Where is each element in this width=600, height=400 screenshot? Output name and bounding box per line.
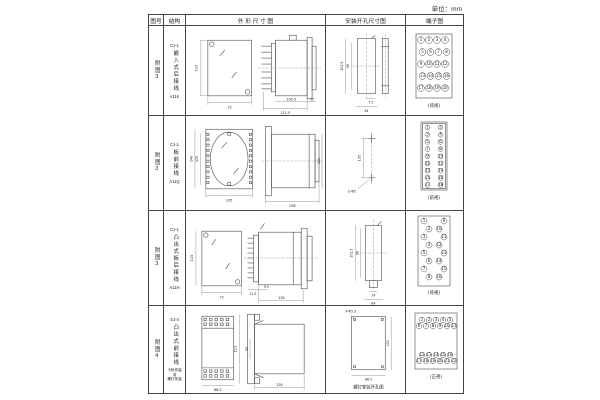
svg-text:4: 4: [428, 242, 431, 247]
svg-text:4: 4: [439, 131, 442, 136]
terminal-pins: 12345678910111213141516: [421, 218, 447, 280]
mounting-drawing-row4: 4-Φ5.5 111 88.5 螺钉安装开孔图: [326, 306, 405, 393]
outline-drawing-row2: 149 125 105 156 121: [186, 116, 325, 211]
dim-front-height: 115: [190, 254, 194, 261]
svg-text:22: 22: [451, 358, 457, 363]
dim-v-outer: 101.5: [350, 248, 354, 257]
fig-number: 附图4: [153, 339, 158, 361]
model-code: CJ-1: [170, 227, 179, 232]
svg-text:16: 16: [438, 174, 444, 179]
dim-side-length: 156: [289, 204, 296, 208]
svg-text:7: 7: [425, 323, 428, 328]
model-code: SJ-4: [170, 317, 179, 322]
terminal-pins: 12345678910111213141516171819202122: [416, 317, 457, 364]
svg-text:16: 16: [447, 352, 453, 357]
mounting-cell-row2: 135 2-Φ5: [326, 116, 406, 211]
svg-text:6: 6: [418, 323, 421, 328]
svg-text:15: 15: [440, 352, 446, 357]
svg-text:16: 16: [444, 73, 450, 78]
svg-text:18: 18: [423, 358, 429, 363]
svg-text:5: 5: [426, 138, 429, 143]
terminal-pins: 135791113151724681012141618: [425, 124, 444, 187]
terminal-cell-row3: 12345678910111213141516 (背视): [406, 211, 463, 306]
mount-note-line1: 卡轨安装: [167, 368, 181, 372]
svg-text:18: 18: [438, 182, 444, 187]
svg-text:4: 4: [442, 317, 445, 322]
terminal-view-label: (背视): [428, 102, 440, 109]
dim-width: 64: [371, 301, 375, 305]
svg-text:17: 17: [418, 85, 424, 90]
svg-text:11: 11: [434, 61, 440, 66]
svg-text:2: 2: [428, 226, 431, 231]
svg-text:7: 7: [423, 266, 426, 271]
dim-front-height-outer: 149: [189, 156, 193, 162]
terminal-cell-row1: 1234567891011121314151617181920 (背视): [406, 26, 463, 116]
struct-cell-row3: CJ-1 凸出式板后接线 A11H: [164, 211, 186, 306]
terminal-screws: [207, 133, 252, 183]
dim-cutout-height: 101.5: [340, 61, 344, 70]
terminal-diagram-row3: 12345678910111213141516 (背视): [406, 211, 463, 306]
front-view: 115 72: [194, 40, 251, 110]
mounting-drawing-row1: 101.5 98 7.5 64: [326, 26, 405, 116]
svg-text:10: 10: [426, 61, 432, 66]
mounting-cell-row4: 4-Φ5.5 111 88.5 螺钉安装开孔图: [326, 306, 406, 393]
svg-text:2: 2: [428, 37, 431, 42]
svg-text:11: 11: [451, 323, 457, 328]
svg-text:12: 12: [419, 352, 425, 357]
svg-text:13: 13: [420, 73, 426, 78]
svg-text:6: 6: [429, 49, 432, 54]
fig-cell-row4: 附图4: [149, 306, 164, 393]
svg-text:8: 8: [428, 274, 431, 279]
svg-text:10: 10: [436, 226, 442, 231]
model-code: CJ-1: [170, 43, 179, 48]
dim-front-width: 105: [226, 198, 233, 202]
unit-label: 单位：mm: [352, 3, 462, 13]
terminal-diagram-row4: 12345678910111213141516171819202122 (正视): [406, 306, 463, 393]
side-view: 121 55 128: [234, 314, 305, 389]
svg-text:15: 15: [425, 174, 431, 179]
svg-text:14: 14: [436, 258, 442, 263]
svg-text:8: 8: [439, 146, 442, 151]
front-view: 115 72: [190, 231, 242, 300]
svg-text:19: 19: [430, 358, 436, 363]
svg-text:10: 10: [438, 153, 444, 158]
header-terminal: 端子图: [406, 15, 463, 26]
svg-text:5: 5: [421, 49, 424, 54]
svg-text:14: 14: [438, 167, 444, 172]
struct-cell-row1: CJ-1 嵌入式后接线 A11K: [164, 26, 186, 116]
dim-cutout-inner: 98: [346, 64, 350, 68]
svg-text:5: 5: [423, 250, 426, 255]
dim-side-height: 121: [317, 158, 321, 164]
dim-side-height: 121: [234, 346, 238, 353]
svg-text:8: 8: [445, 49, 448, 54]
terminal-blocks: [204, 318, 229, 377]
svg-text:15: 15: [441, 266, 447, 271]
svg-text:13: 13: [425, 167, 431, 172]
svg-text:7: 7: [426, 146, 429, 151]
outline-drawing-row3: 115 72 11.5: [186, 211, 325, 306]
svg-text:13: 13: [426, 352, 432, 357]
front-view: 88.5: [202, 316, 234, 392]
svg-text:3: 3: [435, 317, 438, 322]
svg-text:9: 9: [420, 61, 423, 66]
terminal-view-label: (正视): [430, 373, 442, 380]
outline-cell-row3: 115 72 11.5: [186, 211, 326, 306]
fig-number: 附图3: [153, 60, 158, 82]
dim-flange: 15: [310, 97, 314, 101]
dim-front-height-inner: 125: [195, 156, 199, 162]
dim-front-width: 72: [220, 295, 224, 299]
type-code: A11H: [169, 285, 179, 290]
terminal-cell-row4: 12345678910111213141516171819202122 (正视): [406, 306, 463, 393]
svg-text:20: 20: [437, 358, 443, 363]
dim-front-width: 88.5: [214, 388, 222, 392]
dim-inner: 55: [245, 347, 249, 351]
svg-text:2: 2: [439, 124, 442, 129]
header-mounting: 安装开孔尺寸图: [326, 15, 406, 26]
hole-note: 4-Φ5.5: [345, 309, 356, 313]
terminal-view-label: (背视): [428, 289, 440, 296]
svg-text:21: 21: [444, 358, 450, 363]
svg-text:9: 9: [443, 218, 446, 223]
terminal-pins: 1234567891011121314151617181920: [418, 36, 450, 91]
struct-text: 嵌入式后接线: [172, 50, 177, 92]
svg-text:1: 1: [423, 218, 426, 223]
struct-text: 凸出式前接线: [172, 324, 177, 366]
svg-text:17: 17: [416, 358, 422, 363]
terminal-diagram-row1: 1234567891011121314151617181920 (背视): [406, 26, 463, 116]
header-struct: 结构: [164, 15, 186, 26]
outline-drawing-row4: 88.5 121 55 128: [186, 306, 325, 393]
struct-cell-row4: SJ-4 凸出式前接线 卡轨安装 或 螺钉安装: [164, 306, 186, 393]
svg-text:9: 9: [439, 323, 442, 328]
svg-text:12: 12: [438, 160, 444, 165]
svg-text:1: 1: [420, 37, 423, 42]
dim-hole-pitch: 135: [358, 154, 362, 161]
svg-text:6: 6: [439, 138, 442, 143]
dim-front-width: 72: [227, 105, 231, 109]
hole-note: 2-Φ5: [348, 189, 356, 193]
side-view: 100.5 111.5 15: [257, 35, 321, 115]
dim-cutout-width: 64: [364, 108, 368, 112]
fig-cell-row3: 附图3: [149, 211, 164, 306]
svg-text:20: 20: [442, 85, 448, 90]
svg-text:12: 12: [436, 242, 442, 247]
dim-notch: 24: [371, 293, 375, 297]
struct-text: 凸出式板后接线: [172, 234, 177, 283]
dim-v-inner: 98: [355, 251, 359, 255]
mounting-caption: 螺钉安装开孔图: [353, 384, 383, 391]
svg-text:1: 1: [426, 124, 429, 129]
svg-text:15: 15: [436, 73, 442, 78]
dim-body-length: 126: [278, 296, 285, 300]
svg-text:18: 18: [426, 85, 432, 90]
svg-text:12: 12: [442, 61, 448, 66]
side-view: 156 121: [261, 126, 323, 208]
terminal-cell-row2: 135791113151724681012141618 (前视): [406, 116, 463, 211]
header-outline: 外 形 尺 寸 图: [186, 15, 326, 26]
dim-overall-length: 111.5: [280, 111, 290, 115]
svg-text:3: 3: [426, 131, 429, 136]
fig-number: 附图3: [153, 152, 158, 174]
model-code: CJ-1: [170, 142, 179, 147]
dim-body-length: 100.5: [286, 97, 296, 101]
header-fig: 图号: [149, 15, 164, 26]
dim-body-length: 128: [276, 383, 283, 387]
mount-note-line3: 螺钉安装: [167, 377, 181, 381]
mounting-drawing-row3: 101.5 98 24 64: [326, 211, 405, 306]
front-view: 149 125 105: [189, 129, 252, 202]
svg-text:9: 9: [426, 153, 429, 158]
type-code: A11Q: [169, 179, 179, 184]
svg-text:1: 1: [421, 317, 424, 322]
outline-cell-row1: 115 72 100.5: [186, 26, 326, 116]
svg-text:13: 13: [441, 250, 447, 255]
dim-offset: 7.5: [368, 100, 373, 104]
svg-text:11: 11: [425, 160, 431, 165]
dim-w: 88.5: [365, 378, 372, 382]
spec-table: 图号 结构 外 形 尺 寸 图 安装开孔尺寸图 端子图 附图3 CJ-1 嵌入式…: [148, 14, 464, 394]
svg-text:19: 19: [434, 85, 440, 90]
terminal-diagram-row2: 135791113151724681012141618 (前视): [406, 116, 463, 211]
svg-text:3: 3: [436, 37, 439, 42]
dim-front-height: 115: [194, 64, 198, 71]
svg-text:14: 14: [433, 352, 439, 357]
svg-text:3: 3: [423, 234, 426, 239]
svg-text:4: 4: [444, 37, 447, 42]
side-view: 11.5 9.5 126: [244, 223, 319, 302]
terminal-view-label: (前视): [428, 194, 440, 201]
svg-text:16: 16: [436, 274, 442, 279]
outline-cell-row2: 149 125 105 156 121: [186, 116, 326, 211]
svg-text:2: 2: [428, 317, 431, 322]
dim-gap: 9.5: [264, 284, 269, 288]
fig-number: 附图3: [153, 247, 158, 269]
mounting-cell-row3: 101.5 98 24 64: [326, 211, 406, 306]
dim-pin-length: 11.5: [250, 292, 257, 296]
mounting-cell-row1: 101.5 98 7.5 64: [326, 26, 406, 116]
svg-text:17: 17: [425, 182, 431, 187]
svg-text:7: 7: [437, 49, 440, 54]
dim-v: 111: [386, 340, 390, 346]
type-code: A11K: [170, 94, 180, 99]
mounting-drawing-row2: 135 2-Φ5: [326, 116, 405, 211]
fig-cell-row1: 附图3: [149, 26, 164, 116]
fig-cell-row2: 附图3: [149, 116, 164, 211]
outline-drawing-row1: 115 72 100.5: [186, 26, 325, 116]
struct-cell-row2: CJ-1 板前接线 A11Q: [164, 116, 186, 211]
struct-text: 板前接线: [172, 149, 177, 177]
svg-text:14: 14: [428, 73, 434, 78]
svg-text:6: 6: [428, 258, 431, 263]
svg-text:11: 11: [441, 234, 447, 239]
svg-text:5: 5: [449, 317, 452, 322]
svg-text:10: 10: [444, 323, 450, 328]
svg-text:8: 8: [432, 323, 435, 328]
outline-cell-row4: 88.5 121 55 128: [186, 306, 326, 393]
